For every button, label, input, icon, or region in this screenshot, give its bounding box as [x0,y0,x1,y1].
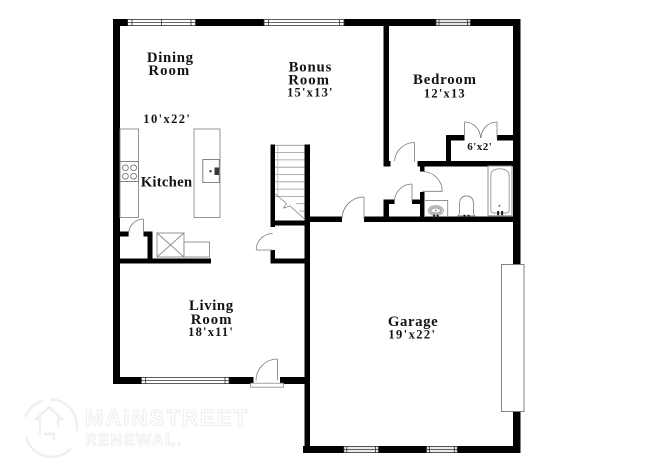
svg-text:15'x13': 15'x13' [287,86,334,100]
svg-text:Room: Room [148,63,190,79]
svg-text:10'x22': 10'x22' [143,112,191,126]
svg-text:RENEWAL.: RENEWAL. [85,432,183,449]
svg-text:19'x22': 19'x22' [388,327,436,341]
svg-text:12'x13: 12'x13 [424,86,466,100]
svg-text:MAINSTREET: MAINSTREET [85,406,249,431]
svg-text:18'x11': 18'x11' [188,325,234,339]
svg-text:Kitchen: Kitchen [141,175,193,191]
svg-text:6'x2': 6'x2' [467,141,492,153]
